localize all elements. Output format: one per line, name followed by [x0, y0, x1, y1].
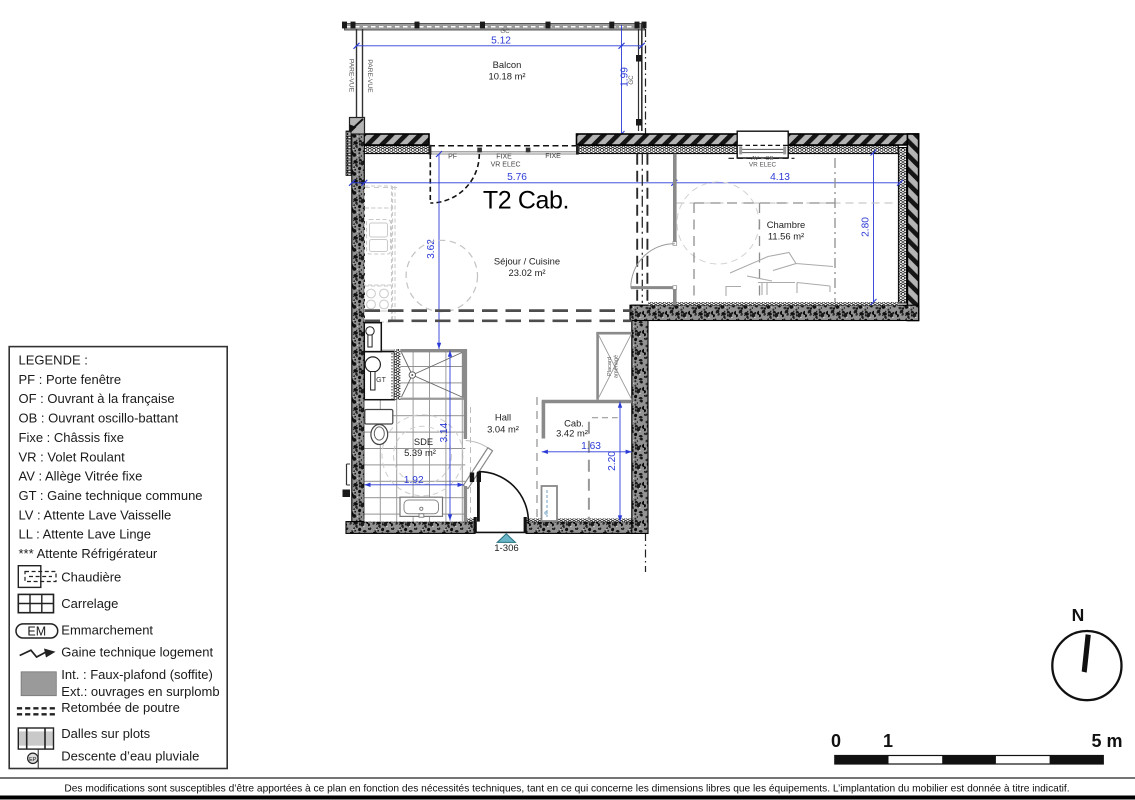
svg-text:4.13: 4.13: [770, 172, 790, 183]
svg-text:PARE-VUE: PARE-VUE: [366, 59, 373, 93]
svg-text:VR ELEC: VR ELEC: [491, 162, 521, 169]
svg-text:Placard: Placard: [607, 357, 613, 376]
svg-text:VR ELEC: VR ELEC: [749, 162, 777, 169]
svg-text:OB : Ouvrant oscillo-battant: OB : Ouvrant oscillo-battant: [19, 411, 179, 426]
svg-text:5.76: 5.76: [507, 172, 527, 183]
svg-text:5.39 m²: 5.39 m²: [404, 447, 436, 458]
svg-text:Balcon: Balcon: [493, 59, 522, 70]
svg-text:1.92: 1.92: [404, 475, 424, 486]
svg-text:Emmarchement: Emmarchement: [61, 622, 153, 637]
svg-text:0: 0: [831, 731, 841, 751]
svg-text:3.04 m²: 3.04 m²: [487, 424, 519, 435]
svg-text:N: N: [1072, 605, 1085, 625]
svg-text:LV : Attente Lave Vaisselle: LV : Attente Lave Vaisselle: [19, 507, 172, 522]
svg-text:Retombée de poutre: Retombée de poutre: [61, 700, 180, 715]
svg-text:*** Attente Réfrigérateur: *** Attente Réfrigérateur: [19, 546, 158, 561]
svg-text:3.14: 3.14: [439, 422, 450, 442]
svg-text:1.63: 1.63: [581, 441, 601, 452]
svg-text:FIXE: FIXE: [545, 153, 561, 160]
svg-text:VR : Volet Roulant: VR : Volet Roulant: [19, 449, 126, 464]
svg-text:LEGENDE :: LEGENDE :: [19, 353, 88, 368]
svg-text:Fixe : Châssis fixe: Fixe : Châssis fixe: [19, 430, 124, 445]
svg-text:GT : Gaine technique commune: GT : Gaine technique commune: [19, 488, 203, 503]
svg-text:Chaudière: Chaudière: [61, 570, 121, 585]
svg-text:aménagé: aménagé: [614, 355, 620, 378]
svg-text:EP: EP: [29, 757, 37, 763]
svg-text:SDE: SDE: [414, 436, 433, 447]
svg-text:2.20: 2.20: [607, 451, 618, 471]
svg-text:PARE-VUE: PARE-VUE: [348, 59, 355, 93]
svg-text:1.99: 1.99: [620, 67, 631, 87]
svg-text:Chambre: Chambre: [767, 219, 806, 230]
svg-text:23.02 m²: 23.02 m²: [509, 267, 546, 278]
svg-text:Ext.: ouvrages en surplomb: Ext.: ouvrages en surplomb: [61, 684, 219, 699]
svg-text:T2 Cab.: T2 Cab.: [483, 187, 569, 215]
svg-text:LL : Attente Lave Linge: LL : Attente Lave Linge: [19, 527, 152, 542]
svg-text:FIXE: FIXE: [496, 154, 512, 161]
svg-text:EM: EM: [27, 624, 46, 638]
svg-text:GC: GC: [500, 28, 510, 35]
svg-text:Int. : Faux-plafond (soffite): Int. : Faux-plafond (soffite): [61, 667, 213, 682]
svg-text:2.80: 2.80: [860, 217, 871, 237]
svg-text:11.56 m²: 11.56 m²: [768, 231, 804, 242]
svg-text:1-306: 1-306: [494, 543, 519, 554]
svg-text:AV : Allège Vitrée fixe: AV : Allège Vitrée fixe: [19, 469, 143, 484]
svg-text:Dalles sur plots: Dalles sur plots: [61, 726, 150, 741]
svg-text:PF: PF: [448, 154, 457, 161]
svg-text:1: 1: [883, 731, 893, 751]
svg-text:5 m: 5 m: [1091, 731, 1122, 751]
svg-text:3.42 m²: 3.42 m²: [556, 428, 588, 439]
svg-text:Carrelage: Carrelage: [61, 596, 118, 611]
svg-text:PF : Porte fenêtre: PF : Porte fenêtre: [19, 372, 122, 387]
svg-text:Séjour / Cuisine: Séjour / Cuisine: [494, 256, 560, 267]
svg-text:OF : Ouvrant à la française: OF : Ouvrant à la française: [19, 391, 175, 406]
svg-text:10.18 m²: 10.18 m²: [489, 71, 526, 82]
svg-text:Descente d’eau pluviale: Descente d’eau pluviale: [61, 748, 199, 763]
svg-text:Hall: Hall: [495, 412, 511, 423]
svg-text:5.12: 5.12: [491, 36, 511, 47]
svg-text:GT: GT: [376, 377, 386, 384]
svg-text:Des modifications sont suscept: Des modifications sont susceptibles d’êt…: [64, 784, 1069, 795]
svg-text:Gaine technique logement: Gaine technique logement: [61, 644, 213, 659]
